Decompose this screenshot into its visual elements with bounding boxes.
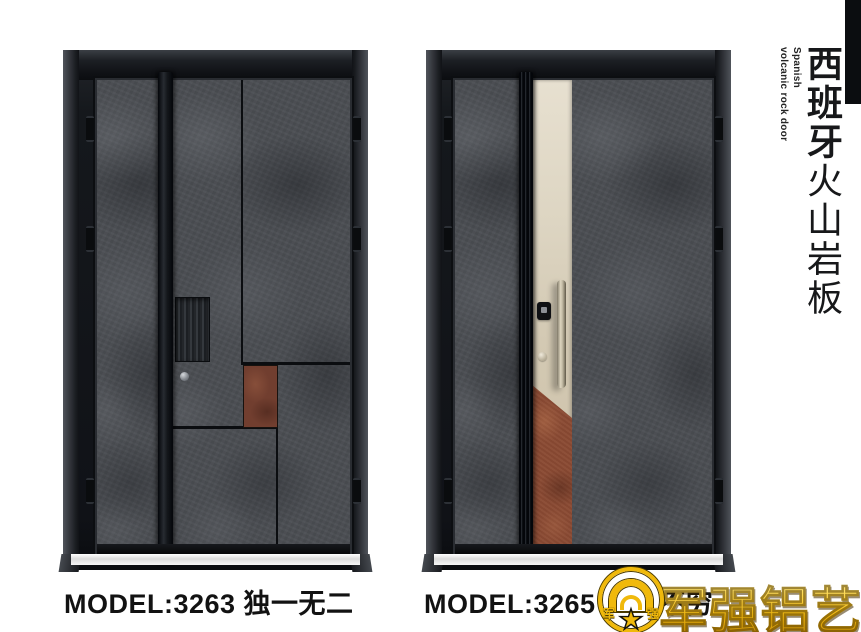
smart-lock [537, 302, 551, 320]
door-frame-top [65, 50, 366, 80]
door-leaf-narrow [97, 80, 158, 554]
champagne-strip [533, 80, 572, 554]
vertical-title-bold: 西班牙 [802, 45, 843, 162]
door-hinge [715, 478, 723, 504]
vertical-subtitle: Spanish volcanic rock door [777, 47, 802, 141]
vertical-subtitle-line1: Spanish [790, 47, 803, 141]
door-hinge [86, 478, 94, 504]
door-opening [455, 80, 712, 554]
door-hinge [444, 116, 452, 142]
door-hinge [353, 116, 361, 142]
model-label-3263: MODEL:3263 独一无二 [64, 582, 354, 621]
door-hinge [86, 226, 94, 252]
door-opening [97, 80, 350, 554]
brand-logo-text: 军强铝艺 [658, 571, 861, 632]
door-hinge [444, 478, 452, 504]
emblem-char-right: 强 [647, 605, 659, 622]
embossed-plate [175, 297, 210, 362]
door-frame-jamb-left [63, 50, 79, 564]
door-bottom-rail [97, 544, 350, 554]
door-photo-3263 [63, 50, 368, 570]
door-bottom-rail [455, 544, 712, 554]
brand-emblem: ★ ★ 军 强 [598, 567, 664, 632]
emblem-char-left: 军 [603, 605, 615, 622]
star-icon: ★ [621, 609, 641, 631]
door-hinge [444, 226, 452, 252]
door-leaf-narrow [455, 80, 519, 554]
poster-canvas: MODEL:3263 独一无二 MODEL:3265 层出不穷 西班牙火山岩板 … [0, 0, 861, 632]
handle-bar [519, 72, 533, 562]
door-hinge [353, 478, 361, 504]
door-hinge [86, 116, 94, 142]
door-hinge [715, 226, 723, 252]
accent-tile-rust [243, 365, 278, 428]
door-frame-jamb-left [426, 50, 442, 564]
handle-bar [158, 72, 173, 562]
corner-accent-bar [845, 0, 861, 104]
pull-handle [557, 280, 566, 388]
vertical-title: 西班牙火山岩板 [804, 45, 840, 318]
vertical-title-light: 火山岩板 [802, 162, 843, 318]
door-hinge [715, 116, 723, 142]
lock-knob [180, 372, 189, 381]
door-leaf-main [572, 80, 712, 554]
panel-seam [241, 80, 243, 365]
vertical-subtitle-line2: volcanic rock door [777, 47, 790, 141]
lock-knob [538, 352, 547, 361]
door-frame-top [428, 50, 729, 80]
door-sill [434, 554, 723, 565]
door-hinge [353, 226, 361, 252]
door-sill [71, 554, 360, 565]
door-photo-3265 [426, 50, 731, 570]
